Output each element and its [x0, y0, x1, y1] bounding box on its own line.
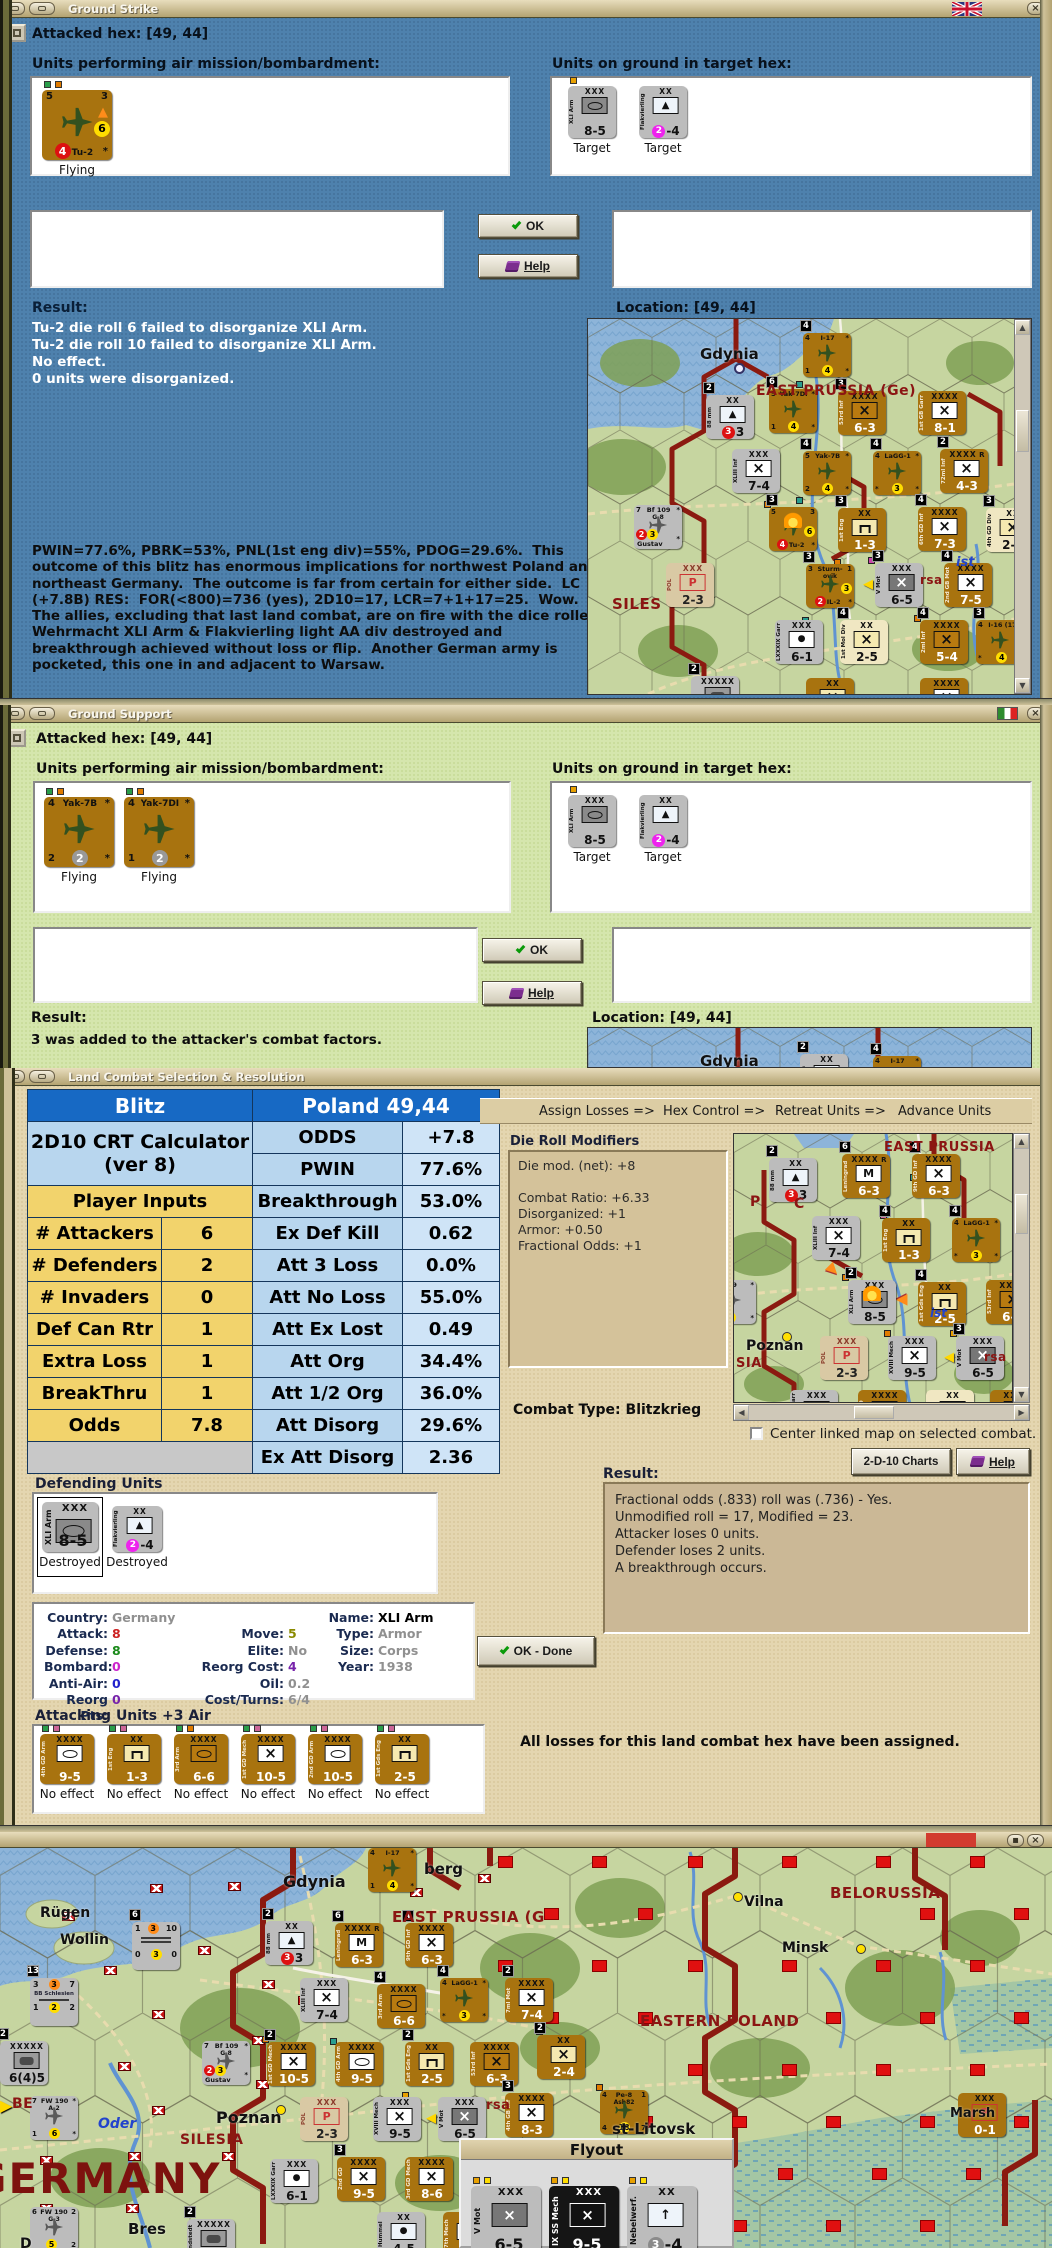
unit-status-label: Flying: [34, 163, 120, 177]
ground-unit-counter[interactable]: XXXXX2: [691, 676, 739, 695]
map-label: Minsk: [782, 1940, 828, 1956]
crt-cell: PWIN: [253, 1154, 403, 1186]
ground-unit-counter[interactable]: XX×: [926, 1390, 974, 1403]
map-label: SILESIA: [180, 2132, 243, 2148]
soviet-control-marker: [920, 1908, 935, 1920]
crt-cell[interactable]: Player Inputs: [28, 1186, 253, 1218]
unit-info-label: Defense:: [44, 1643, 108, 1659]
ground-unit-counter[interactable]: LXXXIX GarrXXX●6-1: [790, 1390, 838, 1403]
ground-unit-counter[interactable]: XX×2-42: [537, 2035, 585, 2079]
ground-unit-counter[interactable]: 88 mmXX▲332: [265, 1921, 313, 1965]
ground-unit-counter[interactable]: 4th GD ArmXXXX9-5: [40, 1734, 94, 1784]
unit-status-label: No effect: [367, 1787, 437, 1801]
defending-units-box[interactable]: XLI ArmXXX8-5DestroyedFlakvierlingXX▲2-4…: [32, 1492, 438, 1594]
result-label: Result:: [603, 1466, 659, 1482]
ground-unit-counter[interactable]: 88 mmXX▲332: [706, 395, 754, 439]
map-label: SILES: [612, 595, 662, 613]
aircraft-icon: [44, 2217, 64, 2237]
air-unit-counter[interactable]: 7Bf 109*G-823Gustav*: [202, 2041, 250, 2085]
ground-unit-counter[interactable]: XXXX×: [920, 678, 968, 695]
crt-cell[interactable]: 2: [162, 1250, 253, 1282]
unit-symbol-art: ●: [789, 631, 815, 648]
crt-cell[interactable]: 0: [162, 1282, 253, 1314]
ground-unit-counter[interactable]: FlakvierlingXX▲2-4: [639, 86, 687, 138]
aircraft-icon: [382, 1858, 402, 1878]
unit-symbol-mech: ×: [258, 1745, 284, 1762]
map-label: Poznan: [746, 1338, 803, 1354]
combat-type-label: Combat Type: Blitzkrieg: [513, 1402, 701, 1418]
german-flag-marker: [262, 1980, 275, 1989]
unit-symbol-aa: ▲: [127, 1517, 153, 1534]
combat-phase-action[interactable]: Hex Control =>: [663, 1104, 765, 1119]
empty-list-box[interactable]: [33, 927, 478, 1003]
ground-unit-counter[interactable]: 2nd GD MechXXXX×9-5: [858, 1390, 906, 1403]
soviet-control-marker: [782, 2064, 797, 2076]
unit-symbol-inf: ×: [932, 402, 958, 419]
map-window-titlebar[interactable]: ▪ ×: [0, 1832, 1052, 1848]
unit-symbol-mech: ×: [872, 1401, 898, 1403]
unit-info-label: Anti-Air:: [44, 1676, 108, 1692]
attacked-hex-label: Attacked hex: [49, 44]: [32, 26, 208, 42]
ground-unit-counter[interactable]: 9th GD InfXXXX×6-34: [405, 1923, 453, 1967]
naval-unit-counter[interactable]: 337BB Schlesien12213: [30, 1978, 78, 2026]
attacked-hex-label: Attacked hex: [49, 44]: [36, 731, 212, 747]
ground-unit-counter[interactable]: XLI ArmXXX8-5: [42, 1502, 98, 1552]
ground-unit-counter[interactable]: XXXX×: [990, 1390, 1013, 1403]
soviet-control-marker: [592, 1856, 607, 1868]
die-modifiers-title: Die Roll Modifiers: [510, 1134, 639, 1149]
aircraft-icon: [966, 1228, 986, 1248]
unit-status-label: No effect: [32, 1787, 102, 1801]
ground-unit-counter[interactable]: 1st EngXX1-33: [838, 508, 886, 552]
ground-unit-counter[interactable]: XXXXX6(4)52: [0, 2041, 48, 2085]
air-unit-counter[interactable]: 4LaGG-1**3*4: [440, 1978, 488, 2022]
unit-info-box: Country:GermanyName:XLI ArmAttack:8Move:…: [32, 1602, 475, 1700]
minimize-icon[interactable]: ▪: [1007, 1834, 1024, 1847]
result-line: No effect.: [32, 354, 106, 370]
crt-cell: Att Org: [253, 1346, 403, 1378]
naval-unit-counter[interactable]: 13100306: [132, 1922, 180, 1970]
ground-unit-counter[interactable]: 4th GB InfXXXX×8-33: [505, 2093, 553, 2137]
ground-unit-counter[interactable]: POLXXXP2-3: [666, 563, 714, 607]
unit-symbol-aa: ▲: [653, 806, 679, 823]
ground-unit-counter[interactable]: LeningradXXXX RM6-36: [335, 1923, 383, 1967]
aircraft-icon: [820, 574, 840, 594]
crt-cell: Att 1/2 Org: [253, 1378, 403, 1410]
air-unit-counter[interactable]: 4LaGG-1**3*4: [952, 1218, 1000, 1262]
ground-unit-counter[interactable]: POLXXXP2-3: [820, 1336, 868, 1380]
combat-phase-action[interactable]: Assign Losses =>: [539, 1104, 655, 1119]
unit-symbol-inf: ×: [820, 689, 846, 695]
combat-result-box: Fractional odds (.833) roll was (.736) -…: [603, 1482, 1030, 1634]
soviet-control-marker: [688, 2064, 703, 2076]
aircraft-icon: [817, 461, 837, 481]
unit-symbol-art: ●: [284, 2170, 310, 2187]
ground-unit-counter[interactable]: IX SS MechXXX×9-5: [549, 2186, 619, 2248]
unit-symbol-art: ●: [391, 2223, 417, 2240]
unit-info-label: Name:: [324, 1610, 374, 1626]
stack-count-badge: 6: [332, 1910, 344, 1922]
charts-button[interactable]: 2-D-10 Charts: [851, 1448, 951, 1475]
crt-cell[interactable]: 1: [162, 1346, 253, 1378]
ground-unit-counter[interactable]: 1st EngXX1-3: [107, 1734, 161, 1784]
aircraft-icon: [817, 343, 837, 363]
unit-symbol-mech: ×: [387, 2108, 413, 2125]
combat-phase-action[interactable]: Advance Units: [898, 1104, 991, 1119]
ground-unit-counter[interactable]: 3rd ArmXXXX6-6: [174, 1734, 228, 1784]
empty-list-box[interactable]: [30, 210, 444, 288]
air-unit-counter[interactable]: 4Yak-7DI*12*: [124, 797, 194, 867]
map-label: st-Litovsk: [612, 2120, 695, 2138]
ground-unit-counter[interactable]: 72ml InfXXXX R×4-32: [940, 449, 988, 493]
ground-unit-counter[interactable]: 1st GD MechXXXX×10-5: [241, 1734, 295, 1784]
soviet-control-marker: [876, 2064, 891, 2076]
crt-calculator-table[interactable]: BlitzPoland 49,442D10 CRT Calculator (ve…: [27, 1089, 500, 1474]
ground-unit-counter[interactable]: V MotXXX×6-53◀: [875, 563, 923, 607]
air-unit-counter[interactable]: 4Yak-7B*22*: [44, 797, 114, 867]
ground-unit-counter[interactable]: 88 mmXX▲332: [769, 1158, 817, 1202]
ground-unit-counter[interactable]: XVIII MechXXX×9-5: [373, 2097, 421, 2141]
air-unit-counter[interactable]: 5Yak-7B*24*4: [803, 451, 851, 495]
stack-count-badge: 4: [437, 1965, 449, 1977]
unit-info-value: [374, 1676, 454, 1692]
german-flag-marker: [152, 2010, 165, 2019]
crt-cell: 77.6%: [403, 1154, 500, 1186]
aircraft-icon: [783, 399, 803, 419]
unit-status-label: No effect: [166, 1787, 236, 1801]
unit-symbol-inf: ×: [419, 1934, 445, 1951]
stack-count-badge: 2: [262, 1908, 274, 1920]
ground-unit-counter[interactable]: XLIII InfXXX×7-4: [732, 449, 780, 493]
ok-button[interactable]: OK: [482, 938, 582, 962]
ground-unit-counter[interactable]: FlakvierlingXX▲2-4: [639, 795, 687, 847]
map-label: ist: [956, 555, 974, 570]
unit-symbol-mech: ×: [902, 1347, 928, 1364]
ground-unit-counter[interactable]: Nebelwerf.XX↑3-4: [627, 2186, 697, 2248]
retreat-chevron-icon: ◀: [863, 577, 873, 592]
air-unit-counter[interactable]: 3Sturm-1ovik2IL-2*33: [806, 564, 854, 608]
soviet-control-marker: [592, 1960, 607, 1972]
soviet-control-marker: [638, 1908, 653, 1920]
fire-marker: [784, 510, 802, 528]
map-label: EAST PRUSSIA (Ge): [756, 383, 916, 399]
map-label: berg: [424, 1860, 463, 1878]
crt-cell[interactable]: # Defenders: [28, 1250, 162, 1282]
flyout-title[interactable]: Flyout: [461, 2140, 732, 2160]
unit-info-label: [324, 1692, 374, 1725]
stack-count-badge: 2: [688, 663, 700, 675]
aircraft-icon: [62, 812, 96, 846]
empty-list-box[interactable]: [612, 210, 1032, 288]
crt-cell[interactable]: BreakThru: [28, 1378, 162, 1410]
stack-count-badge: 13: [27, 1965, 39, 1977]
strategic-map-window: ▪ ×: [0, 1832, 1052, 2248]
ground-unit-counter[interactable]: 4th GD ArmXXXX9-5: [335, 2042, 383, 2086]
unit-status-label: No effect: [300, 1787, 370, 1801]
unit-symbol-aa: ▲: [279, 1932, 305, 1949]
empty-list-box[interactable]: [612, 927, 1032, 1003]
restore-button[interactable]: [29, 1070, 55, 1083]
aircraft-icon: [733, 1290, 742, 1310]
map-label: Marsh: [950, 2106, 995, 2121]
unit-symbol-arm: [325, 1745, 351, 1762]
unit-symbol-mech: ×: [351, 2168, 377, 2185]
air-unit-counter[interactable]: 4I-17*14*4: [803, 333, 851, 377]
unit-status-label: Flying: [116, 870, 202, 884]
ground-unit-counter[interactable]: POLXXXP2-3: [300, 2097, 348, 2141]
soviet-control-marker: [1014, 2116, 1029, 2128]
ok-done-button[interactable]: OK - Done: [477, 1636, 595, 1666]
unit-symbol-mot: ×: [889, 574, 915, 591]
map-label: Oder: [98, 2116, 136, 2132]
crt-cell: Att 3 Loss: [253, 1250, 403, 1282]
ground-unit-counter[interactable]: XLI ArmXXX8-5: [568, 795, 616, 847]
air-units-box[interactable]: 534Tu-2*▲6Flying: [30, 76, 510, 176]
crt-cell[interactable]: 1: [162, 1378, 253, 1410]
crt-cell[interactable]: # Invaders: [28, 1282, 162, 1314]
stack-count-badge: 3: [334, 2144, 346, 2156]
soviet-control-marker: [966, 2168, 981, 2180]
unit-symbol-inf: ×: [934, 689, 960, 695]
stack-count-badge: 2: [534, 2022, 546, 2034]
air-unit-counter[interactable]: 6FW 1902G-352: [30, 2207, 78, 2248]
ground-unit-counter[interactable]: 88 mmXX▲2: [800, 1054, 848, 1068]
unit-symbol-eng: [124, 1745, 150, 1762]
crt-cell[interactable]: Odds: [28, 1410, 162, 1442]
unit-info-label: Attack:: [44, 1626, 108, 1642]
stack-count-badge: 4: [949, 1205, 961, 1217]
stack-count-badge: 2: [766, 1145, 778, 1157]
ground-units-label: Units on ground in target hex:: [552, 56, 792, 72]
ground-unit-counter[interactable]: LeningradXXXX RM6-36: [842, 1154, 890, 1198]
ground-unit-counter[interactable]: LXXXIX GarrXXX●6-1: [775, 620, 823, 664]
unit-symbol-eng: [392, 1745, 418, 1762]
unit-symbol-arm: [391, 1995, 417, 2012]
ground-units-box[interactable]: XLI ArmXXX8-5TargetFlakvierlingXX▲2-4Tar…: [550, 781, 1032, 913]
stack-count-badge: 4: [915, 494, 927, 506]
restore-button[interactable]: [29, 707, 55, 720]
map-label: Poznan: [216, 2108, 282, 2127]
map-vertical-scrollbar[interactable]: ▲ ▼: [1014, 319, 1031, 694]
stack-count-badge: 2: [845, 1267, 857, 1279]
aircraft-icon: [454, 1988, 474, 2008]
combat-phase-action[interactable]: Retreat Units =>: [775, 1104, 886, 1119]
ground-unit-counter[interactable]: 1st GD MechXXXX×10-52: [267, 2042, 315, 2086]
die-modifiers-panel: Die mod. (net): +8 Combat Ratio: +6.33Di…: [508, 1150, 728, 1368]
ground-unit-counter[interactable]: XLI ArmXXX8-5: [568, 86, 616, 138]
crt-cell: 2D10 CRT Calculator (ver 8): [28, 1122, 253, 1186]
behind-window-title-fragment: [926, 1833, 976, 1847]
ground-unit-counter[interactable]: 9th GD InfXXXX×6-34: [912, 1154, 960, 1198]
stack-count-badge: 4: [917, 607, 929, 619]
air-unit-counter[interactable]: 7FW 190*A-216*: [30, 2096, 78, 2140]
strategic-map[interactable]: ▶13100306337BB Schlesien12213XXXXX6(4)52…: [0, 1848, 1052, 2248]
defending-units-label: Defending Units: [35, 1476, 163, 1492]
soviet-control-marker: [782, 1960, 797, 1972]
soviet-control-marker: [970, 2064, 985, 2076]
map-horizontal-scrollbar[interactable]: ◀ ▶: [733, 1404, 1030, 1421]
aircraft-icon: [44, 2106, 64, 2126]
crt-cell[interactable]: 1: [162, 1314, 253, 1346]
unit-info-label: [324, 1676, 374, 1692]
unit-symbol-par: P: [680, 574, 706, 591]
map-label: D: [20, 2236, 32, 2248]
help-button[interactable]: Help: [478, 254, 578, 278]
ground-unit-counter[interactable]: 1st Mol DivXX×2-54: [840, 620, 888, 664]
ground-unit-counter[interactable]: 2ml InfXXXX×5-44: [920, 620, 968, 664]
land-combat-titlebar[interactable]: Land Combat Selection & Resolution: [0, 1068, 1052, 1086]
unit-symbol-inf: ×: [854, 631, 880, 648]
window-title: Ground Strike: [68, 2, 158, 16]
ground-unit-counter[interactable]: HummelXX●4-5: [377, 2212, 425, 2248]
crt-cell[interactable]: 7.8: [162, 1410, 253, 1442]
unit-info-value: Corps: [374, 1643, 454, 1659]
unit-symbol-art: ●: [804, 1401, 830, 1403]
unit-symbol-inf: ×: [1004, 1401, 1013, 1403]
unit-info-value: 8: [108, 1643, 188, 1659]
combat-mini-map[interactable]: ▶▶88 mmXX▲332LeningradXXXX RM6-369th GD …: [733, 1133, 1013, 1403]
unit-info-value: 0: [108, 1676, 188, 1692]
attacking-units-box[interactable]: 4th GD ArmXXXX9-5No effect1st EngXX1-3No…: [32, 1724, 485, 1814]
ground-units-box[interactable]: XLI ArmXXX8-5TargetFlakvierlingXX▲2-4Tar…: [550, 76, 1032, 176]
soviet-control-marker: [920, 2116, 935, 2128]
die-modifier-line: [510, 1174, 726, 1190]
ground-unit-counter[interactable]: 3rd GD MechXXXX×8-6: [405, 2157, 453, 2201]
map-vertical-scrollbar[interactable]: ▲ ▼: [1013, 1133, 1030, 1403]
air-unit-counter[interactable]: 109*3*: [733, 1280, 756, 1324]
stack-count-badge: 4: [870, 1043, 882, 1055]
soviet-control-marker: [778, 2168, 793, 2180]
combat-result-line: Attacker loses 0 units.: [605, 1526, 1028, 1543]
unit-info-label: Move:: [188, 1626, 284, 1642]
unit-info-label: Size:: [324, 1643, 374, 1659]
crt-cell[interactable]: Extra Loss: [28, 1346, 162, 1378]
soviet-control-marker: [732, 2220, 747, 2232]
soviet-control-marker: [826, 2220, 841, 2232]
fire-marker: [863, 1283, 881, 1301]
help-button[interactable]: Help: [482, 981, 582, 1005]
unit-symbol-par: P: [314, 2108, 340, 2125]
unit-info-value: XLI Arm: [374, 1610, 454, 1626]
help-button[interactable]: Help: [956, 1448, 1030, 1475]
unit-symbol-inf: ×: [484, 2053, 510, 2070]
retreat-chevron-icon: ◀: [944, 1350, 954, 1365]
unit-symbol-m: M: [349, 1934, 375, 1951]
unit-symbol-inf: ×: [932, 518, 958, 535]
ground-unit-counter[interactable]: V MotXXX×6-5◀: [438, 2097, 486, 2141]
unit-info-value: 8: [108, 1626, 188, 1642]
ground-unit-counter[interactable]: 1st Gds EngXX2-52: [405, 2042, 453, 2086]
ground-unit-counter[interactable]: XLIII InfXXX×7-4: [300, 1978, 348, 2022]
stack-count-badge: 4: [837, 607, 849, 619]
air-unit-counter[interactable]: 7Bf 109*G-823Gustav*: [634, 505, 682, 549]
air-unit-counter[interactable]: 4I-17*4: [873, 1056, 921, 1068]
ground-unit-counter[interactable]: 53rd InfXXXX×6-3: [986, 1280, 1013, 1324]
combat-result-line: Unmodified roll = 17, Modified = 23.: [605, 1509, 1028, 1526]
crt-cell: 0.62: [403, 1218, 500, 1250]
german-flag-marker: [198, 1946, 211, 1955]
air-unit-counter[interactable]: 4I-17*14*: [368, 1848, 416, 1892]
result-label: Result:: [31, 1010, 87, 1026]
ground-unit-counter[interactable]: 1st Gds EngXX2-5: [375, 1734, 429, 1784]
crt-cell[interactable]: 6: [162, 1218, 253, 1250]
center-map-checkbox[interactable]: [750, 1427, 763, 1440]
stack-count-badge: 4: [915, 1269, 927, 1281]
ground-unit-counter[interactable]: XLIII InfXXX×7-4: [812, 1216, 860, 1260]
air-unit-counter[interactable]: 534Tu-2*63: [769, 507, 817, 551]
german-flag-marker: [150, 1884, 163, 1893]
flyout-window[interactable]: Flyout V MotXXX×6-5IX SS MechXXX×9-5Nebe…: [459, 2138, 734, 2248]
ground-unit-counter[interactable]: 1st EngXX1-34: [882, 1218, 930, 1262]
ok-button[interactable]: OK: [478, 214, 578, 238]
ground-unit-counter[interactable]: 7ml MotXXXX×7-42: [505, 1978, 553, 2022]
crt-cell: 29.6%: [403, 1410, 500, 1442]
map-label: BE: [12, 2096, 33, 2112]
ground-unit-counter[interactable]: LXXXIX GarrXXX●6-1: [270, 2159, 318, 2203]
stack-count-badge: 4: [800, 438, 812, 450]
ground-unit-counter[interactable]: 2nd GD ArmXXXX10-5: [308, 1734, 362, 1784]
map-label: rsa: [920, 573, 943, 587]
stack-count-badge: 3: [502, 2080, 514, 2092]
unit-info-value: Germany: [108, 1610, 188, 1626]
unit-symbol-arm: [349, 2053, 375, 2070]
land-combat-window: Land Combat Selection & Resolution Blitz…: [0, 1068, 1052, 1832]
unit-symbol-inf: ×: [519, 1989, 545, 2006]
air-units-box[interactable]: 4Yak-7B*22*Flying4Yak-7DI*12*Flying: [33, 781, 511, 913]
mini-map[interactable]: 88 mmXX▲24I-17*4Gdynia: [587, 1027, 1032, 1068]
tactical-map[interactable]: 4I-17*14*488 mmXX▲3325Yak-7DI*14*653rd I…: [587, 318, 1032, 695]
ground-strike-titlebar[interactable]: Ground Strike ×: [0, 0, 1052, 18]
ground-unit-counter[interactable]: 3rd ArmXXXX6-64: [377, 1984, 425, 2028]
unit-symbol-m: M: [856, 1165, 882, 1182]
ground-unit-counter[interactable]: XX×: [806, 678, 854, 695]
unit-info-value: 0.2: [284, 1676, 324, 1692]
ground-unit-counter[interactable]: XVIII MechXXX×9-5: [888, 1336, 936, 1380]
crt-cell[interactable]: Def Can Rtr: [28, 1314, 162, 1346]
ground-unit-counter[interactable]: 6th GD InfXXXX×7-34: [918, 507, 966, 551]
air-unit-counter[interactable]: 534Tu-2*▲6: [42, 90, 112, 160]
crt-cell: Att No Loss: [253, 1282, 403, 1314]
close-icon[interactable]: ×: [1027, 1834, 1044, 1847]
ground-unit-counter[interactable]: V MotXXX×6-5: [471, 2186, 541, 2248]
ground-unit-counter[interactable]: RundstedtXXXXX7(4)42: [187, 2219, 235, 2248]
die-modifier-line: Combat Ratio: +6.33: [510, 1190, 726, 1206]
unit-info-label: Elite:: [188, 1643, 284, 1659]
german-flag-marker: [118, 2062, 131, 2071]
ground-units-label: Units on ground in target hex:: [552, 761, 792, 777]
soviet-control-marker: [970, 1960, 985, 1972]
unit-symbol-inf: ×: [314, 1989, 340, 2006]
ground-unit-counter[interactable]: XLI ArmXXX8-52: [848, 1280, 896, 1324]
attacking-units-label: Attacking Units +3 Air: [35, 1708, 211, 1724]
soviet-control-marker: [876, 1856, 891, 1868]
ground-unit-counter[interactable]: 2nd GD MechXXXX×9-53: [337, 2157, 385, 2201]
ground-unit-counter[interactable]: 1st GB GarrXXXX×8-1: [918, 391, 966, 435]
window-title: Land Combat Selection & Resolution: [68, 1070, 305, 1084]
ground-support-titlebar[interactable]: Ground Support ×: [0, 705, 1052, 723]
unit-info-label: [188, 1610, 284, 1626]
crt-cell[interactable]: # Attackers: [28, 1218, 162, 1250]
combat-result-line: Defender loses 2 units.: [605, 1543, 1028, 1560]
ground-unit-counter[interactable]: FlakvierlingXX▲2-4: [112, 1506, 162, 1552]
air-unit-counter[interactable]: 4LaGG-1**3*4: [873, 451, 921, 495]
map-label: Wollin: [60, 1932, 109, 1948]
stack-count-badge: 3: [835, 495, 847, 507]
map-label: rsa: [984, 1350, 1007, 1364]
restore-button[interactable]: [29, 2, 55, 15]
unit-symbol-arm: [582, 806, 608, 823]
map-label: Gdynia: [283, 1872, 346, 1891]
